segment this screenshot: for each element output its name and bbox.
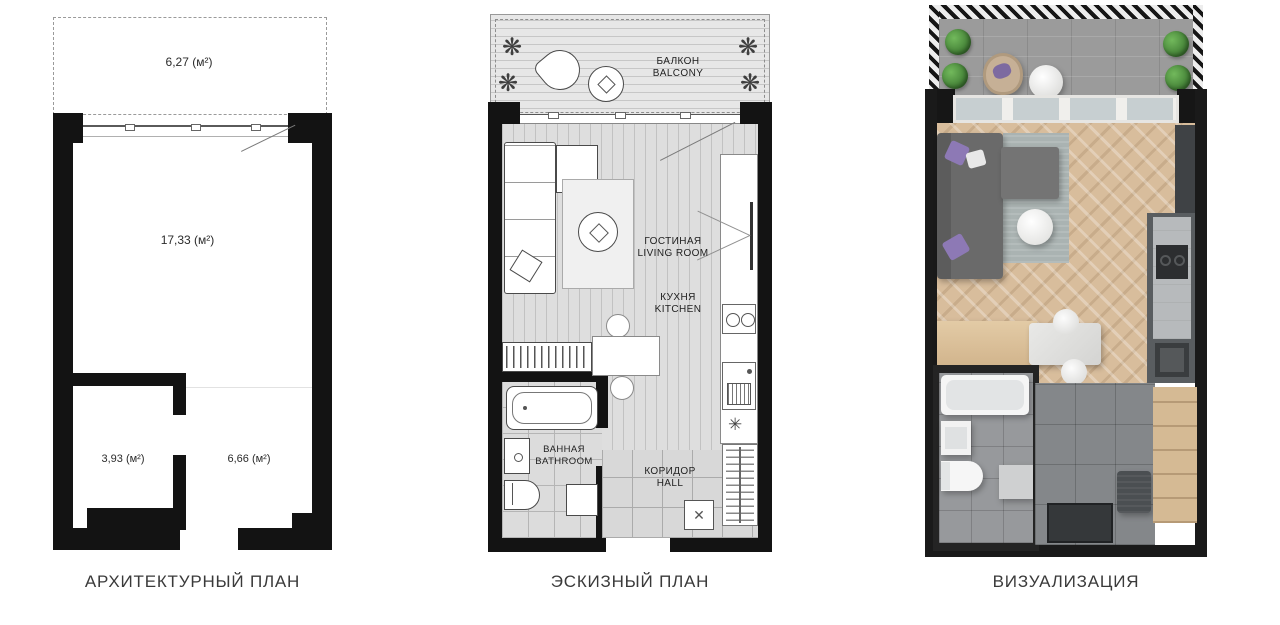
plant-icon: ❋ <box>498 72 518 96</box>
dining-chair <box>1061 359 1087 385</box>
balcony-table <box>1029 65 1063 99</box>
snowflake-icon: ✳ <box>728 416 742 433</box>
hall-area-label: 6,66 (м²) <box>186 453 312 465</box>
plant <box>1163 31 1189 57</box>
caption-visualization: ВИЗУАЛИЗАЦИЯ <box>925 572 1207 592</box>
burner-icon <box>726 313 740 327</box>
pouf: ✕ <box>684 500 714 530</box>
window-band <box>953 95 1179 123</box>
architectural-plan: 6,27 (м²) 17,33 (м²) 3,93 (м²) 6,66 (м²) <box>45 15 340 550</box>
plant-icon: ❋ <box>738 36 758 60</box>
bathroom-sink <box>941 421 971 455</box>
wall-right <box>758 102 772 552</box>
cross-icon: ✕ <box>693 507 705 523</box>
sink-basin <box>945 427 967 449</box>
kitchen-label-en: KITCHEN <box>628 304 728 316</box>
wicker-chair <box>983 53 1023 95</box>
sink-dot <box>514 453 523 462</box>
bathroom-door-opening <box>173 415 186 455</box>
wall-left <box>53 113 73 550</box>
toilet <box>941 461 983 491</box>
stove <box>722 304 756 334</box>
sink-basin <box>1160 348 1184 372</box>
living-room-label: ГОСТИНАЯ LIVING ROOM <box>618 236 728 260</box>
living-label-en: LIVING ROOM <box>618 248 728 260</box>
toilet <box>504 480 540 510</box>
window-hardware-icon <box>615 112 626 119</box>
door-mat <box>1047 503 1113 543</box>
sink-basin <box>727 383 751 405</box>
tv <box>750 202 753 270</box>
bathroom-label: ВАННАЯ BATHROOM <box>524 444 604 468</box>
kitchen-label: КУХНЯ KITCHEN <box>628 292 728 316</box>
balcony-railing-top <box>929 5 1203 19</box>
partition-horizontal <box>73 373 185 386</box>
burner <box>1174 255 1185 266</box>
balcony-label: БАЛКОН BALCONY <box>628 56 728 80</box>
burner <box>1160 255 1171 266</box>
window-hardware-icon <box>125 124 135 131</box>
entrance-opening <box>606 538 670 552</box>
toilet-tank <box>505 483 513 505</box>
chair-pillow <box>991 61 1013 80</box>
wardrobe <box>722 444 758 526</box>
window-hardware-icon <box>191 124 201 131</box>
balcony-floor <box>939 19 1193 97</box>
cooktop <box>1156 245 1188 279</box>
washing-machine <box>999 465 1033 499</box>
table-detail <box>589 223 609 243</box>
coffee-table <box>1017 209 1053 245</box>
tv-unit <box>1175 125 1195 215</box>
window-band <box>520 114 740 124</box>
burner-icon <box>741 313 755 327</box>
wall-step <box>87 508 173 528</box>
toilet-tank <box>941 462 950 490</box>
hall-label: КОРИДОР HALL <box>618 466 722 490</box>
plant <box>942 63 968 89</box>
kitchen-label-ru: КУХНЯ <box>628 292 728 304</box>
balcony-area-label: 6,27 (м²) <box>53 55 325 69</box>
coffee-table <box>578 212 618 252</box>
wall-right <box>312 113 332 550</box>
drain-dot <box>523 406 527 410</box>
balcony-railing-right <box>1193 5 1203 97</box>
bathtub-inner <box>946 380 1024 410</box>
living-label-ru: ГОСТИНАЯ <box>618 236 728 248</box>
dining-chair <box>1053 309 1079 335</box>
hall-shelving <box>1153 387 1197 523</box>
kitchen-sink <box>1155 343 1189 377</box>
hall-label-en: HALL <box>618 478 722 490</box>
balcony-label-ru: БАЛКОН <box>628 56 728 68</box>
wood-counter <box>937 321 1037 365</box>
plant <box>945 29 971 55</box>
plant <box>1165 65 1191 91</box>
faucet-dot <box>747 369 752 374</box>
bathtub <box>941 375 1029 415</box>
dining-chair <box>606 314 630 338</box>
wall-left <box>488 102 502 552</box>
dining-chair <box>610 376 634 400</box>
entrance-opening <box>180 528 238 550</box>
wardrobe-rail <box>739 447 741 523</box>
sofa-chaise <box>1001 147 1059 199</box>
window-hardware-icon <box>251 124 261 131</box>
window-hardware-icon <box>680 112 691 119</box>
bookshelf <box>502 342 592 372</box>
kitchen-sink <box>722 362 756 410</box>
bathroom-area-label: 3,93 (м²) <box>73 453 173 465</box>
window-band <box>83 125 288 137</box>
wall-notch <box>292 513 312 528</box>
laundry-basket <box>1117 471 1151 513</box>
living-area-label: 17,33 (м²) <box>83 233 292 247</box>
hall-boundary-line <box>186 387 312 388</box>
bathroom-label-en: BATHROOM <box>524 456 604 468</box>
balcony-railing-left <box>929 5 939 97</box>
sketch-plan: ❋ ❋ ❋ ❋ БАЛКОН BALCONY ГОСТИНАЯ LIVING R… <box>488 14 772 552</box>
caption-architectural: АРХИТЕКТУРНЫЙ ПЛАН <box>45 572 340 592</box>
books-pattern <box>506 346 588 368</box>
plant-icon: ❋ <box>740 72 760 96</box>
washing-machine <box>566 484 598 516</box>
visualization-render <box>925 5 1207 557</box>
plant-icon: ❋ <box>502 36 522 60</box>
balcony-label-en: BALCONY <box>628 68 728 80</box>
dining-table <box>592 336 660 376</box>
balcony-table <box>588 66 624 102</box>
table-detail <box>597 75 615 93</box>
window-hardware-icon <box>548 112 559 119</box>
caption-sketch: ЭСКИЗНЫЙ ПЛАН <box>488 572 772 592</box>
bathtub <box>506 386 598 430</box>
hall-label-ru: КОРИДОР <box>618 466 722 478</box>
bathroom-label-ru: ВАННАЯ <box>524 444 604 456</box>
